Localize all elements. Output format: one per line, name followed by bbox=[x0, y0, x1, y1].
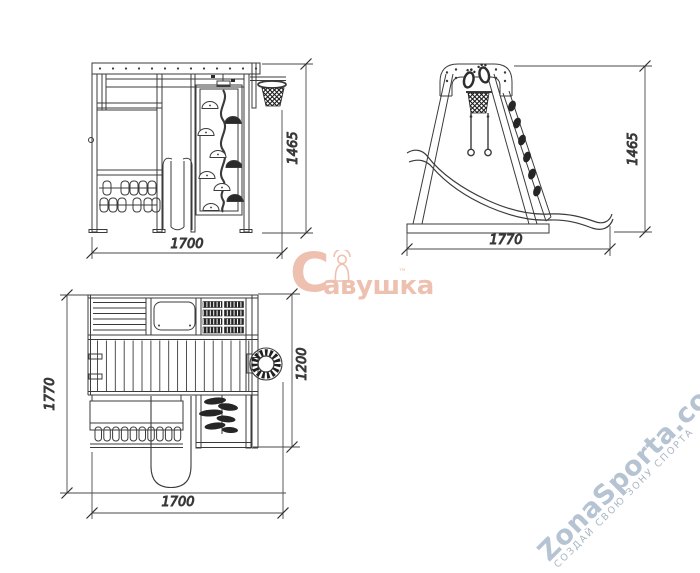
drawing-page: { "title": "Playground complex technical… bbox=[0, 0, 700, 573]
abacus-front bbox=[99, 181, 160, 212]
side-base bbox=[407, 224, 549, 233]
front-bolt-dots bbox=[99, 67, 257, 69]
front-panel bbox=[89, 110, 163, 175]
abacus-top bbox=[90, 395, 183, 448]
climbing-wall-front bbox=[196, 74, 243, 215]
technical-drawing: 1465 1700 bbox=[0, 0, 700, 573]
slide-top bbox=[151, 396, 191, 488]
rung-grips-top bbox=[203, 302, 244, 334]
side-view: 1770 1465 bbox=[402, 61, 653, 257]
top-dimensions bbox=[60, 289, 300, 520]
top-frame bbox=[88, 295, 258, 448]
deck-planks-top bbox=[98, 341, 249, 392]
footprints-icon bbox=[462, 62, 490, 88]
climbing-holds-side bbox=[507, 100, 543, 198]
top-view: 1770 1700 1200 bbox=[43, 289, 310, 520]
slide-front bbox=[163, 158, 192, 230]
basketball-net-side bbox=[466, 92, 492, 113]
basketball-hoop-front bbox=[250, 77, 286, 106]
top-side-label: 1200 bbox=[295, 347, 310, 380]
climbing-holds-front bbox=[198, 102, 243, 211]
monkey-bars-top bbox=[93, 303, 146, 331]
holds-section-top bbox=[196, 395, 251, 448]
climbing-holds-top bbox=[199, 396, 239, 433]
gym-rings-side bbox=[468, 113, 491, 156]
slide-side bbox=[407, 150, 613, 229]
top-depth-label: 1770 bbox=[43, 377, 58, 410]
panel-top bbox=[154, 302, 195, 330]
side-height-label: 1465 bbox=[626, 132, 641, 165]
front-height-label: 1465 bbox=[286, 131, 301, 164]
front-view: 1465 1700 bbox=[87, 59, 314, 260]
front-width-label: 1700 bbox=[170, 237, 203, 252]
side-width-label: 1770 bbox=[489, 233, 522, 248]
top-width-label: 1700 bbox=[161, 495, 194, 510]
basketball-net-front bbox=[262, 88, 284, 106]
